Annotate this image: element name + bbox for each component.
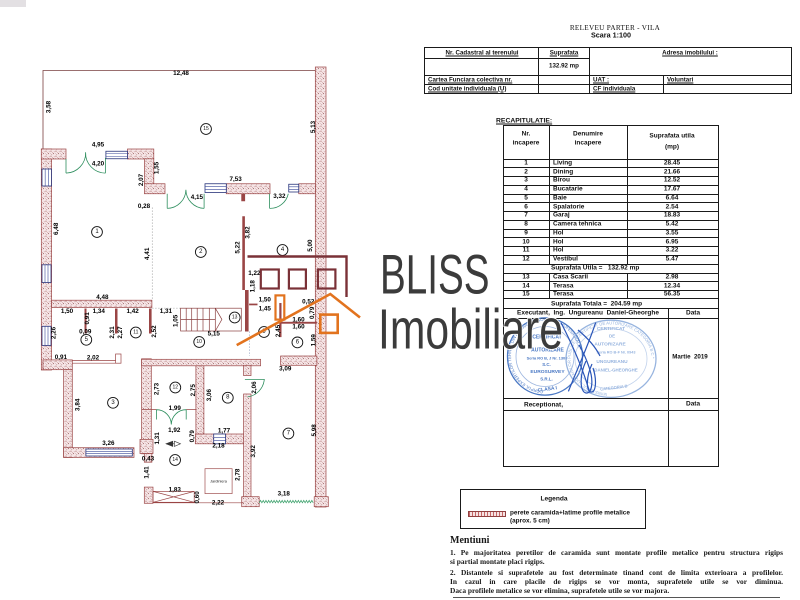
svg-text:1,60: 1,60 (292, 324, 305, 331)
svg-text:S.R.L.: S.R.L. (540, 376, 552, 381)
svg-text:1,50: 1,50 (259, 297, 272, 304)
svg-text:6,48: 6,48 (53, 222, 60, 235)
svg-text:4,15: 4,15 (191, 194, 204, 201)
svg-text:1,60: 1,60 (292, 316, 305, 323)
svg-text:3,92: 3,92 (250, 445, 257, 458)
svg-text:0,09: 0,09 (79, 329, 92, 336)
svg-text:0,79: 0,79 (309, 306, 316, 319)
svg-text:1,45: 1,45 (259, 305, 272, 312)
svg-text:11: 11 (133, 330, 138, 336)
svg-text:5,22: 5,22 (235, 241, 242, 254)
svg-text:4,20: 4,20 (92, 161, 105, 168)
svg-text:5,98: 5,98 (311, 424, 318, 437)
svg-text:4,95: 4,95 (92, 142, 105, 149)
svg-text:1,18: 1,18 (250, 280, 257, 293)
svg-text:13: 13 (232, 315, 238, 321)
svg-text:1,55: 1,55 (154, 161, 161, 174)
svg-text:1,92: 1,92 (168, 427, 181, 434)
svg-text:3,32: 3,32 (273, 193, 286, 200)
svg-text:2,45: 2,45 (275, 324, 282, 337)
svg-text:0,60: 0,60 (194, 491, 201, 504)
svg-text:2,78: 2,78 (235, 468, 242, 481)
svg-text:2,22: 2,22 (212, 500, 225, 507)
svg-text:12: 12 (173, 385, 179, 391)
svg-text:3,18: 3,18 (278, 491, 291, 498)
svg-text:1,41: 1,41 (144, 466, 151, 479)
svg-text:3,06: 3,06 (206, 388, 213, 401)
svg-text:1,31: 1,31 (154, 432, 161, 445)
svg-text:5,15: 5,15 (208, 331, 221, 338)
svg-text:14: 14 (172, 457, 178, 463)
svg-text:3,09: 3,09 (279, 365, 292, 372)
svg-text:2,27: 2,27 (117, 326, 124, 339)
svg-text:2,31: 2,31 (109, 326, 116, 339)
svg-text:2,52: 2,52 (151, 325, 158, 338)
svg-text:Seria RO B-F Nr. 0943: Seria RO B-F Nr. 0943 (596, 351, 635, 355)
svg-text:2,07: 2,07 (138, 173, 145, 186)
svg-text:DE: DE (609, 334, 615, 339)
svg-text:4,48: 4,48 (96, 294, 109, 301)
svg-text:S.C.: S.C. (542, 362, 551, 367)
svg-text:1,99: 1,99 (169, 405, 182, 412)
svg-text:2,06: 2,06 (251, 381, 258, 394)
svg-text:1,22: 1,22 (248, 270, 261, 277)
svg-text:0,91: 0,91 (84, 312, 91, 325)
svg-text:3,82: 3,82 (245, 226, 252, 239)
svg-text:1,83: 1,83 (169, 487, 182, 494)
svg-text:EUROSURVEY: EUROSURVEY (530, 369, 565, 375)
svg-text:CATEGORIA B: CATEGORIA B (600, 383, 628, 391)
svg-text:1,34: 1,34 (93, 308, 106, 315)
svg-text:12,48: 12,48 (173, 70, 189, 77)
svg-text:1,77: 1,77 (218, 428, 231, 435)
svg-text:AUTORIZARE: AUTORIZARE (594, 342, 626, 348)
svg-text:UNGUREANU: UNGUREANU (596, 359, 628, 365)
svg-text:4,41: 4,41 (144, 247, 151, 260)
svg-text:0,79: 0,79 (189, 430, 196, 443)
svg-text:1,31: 1,31 (160, 308, 173, 315)
svg-text:3,26: 3,26 (102, 440, 115, 447)
svg-text:1,50: 1,50 (61, 308, 74, 315)
svg-text:1,42: 1,42 (126, 308, 139, 315)
svg-text:5,00: 5,00 (307, 239, 314, 252)
svg-text:2,02: 2,02 (87, 355, 100, 362)
svg-text:2,73: 2,73 (154, 382, 161, 395)
svg-text:0,28: 0,28 (138, 203, 151, 210)
svg-text:CERTIFICAT: CERTIFICAT (597, 326, 625, 332)
svg-text:DANIEL-GHEORGHE: DANIEL-GHEORGHE (594, 368, 637, 373)
svg-text:0,43: 0,43 (142, 456, 155, 463)
svg-text:BLISS: BLISS (380, 243, 490, 306)
svg-text:0,91: 0,91 (55, 354, 68, 361)
svg-text:2,26: 2,26 (51, 326, 58, 339)
svg-text:Imobiliare: Imobiliare (378, 298, 563, 362)
svg-text:3,58: 3,58 (46, 100, 53, 113)
svg-text:2,18: 2,18 (212, 443, 225, 450)
svg-text:1,05: 1,05 (173, 314, 180, 327)
svg-text:Jardiniera: Jardiniera (210, 480, 228, 484)
svg-text:15: 15 (203, 126, 209, 132)
svg-text:3,84: 3,84 (74, 398, 81, 411)
svg-text:7,53: 7,53 (229, 176, 242, 183)
svg-text:2,75: 2,75 (190, 384, 197, 397)
svg-text:10: 10 (196, 339, 202, 345)
svg-text:1,59: 1,59 (311, 334, 318, 347)
svg-text:5,13: 5,13 (310, 120, 317, 133)
